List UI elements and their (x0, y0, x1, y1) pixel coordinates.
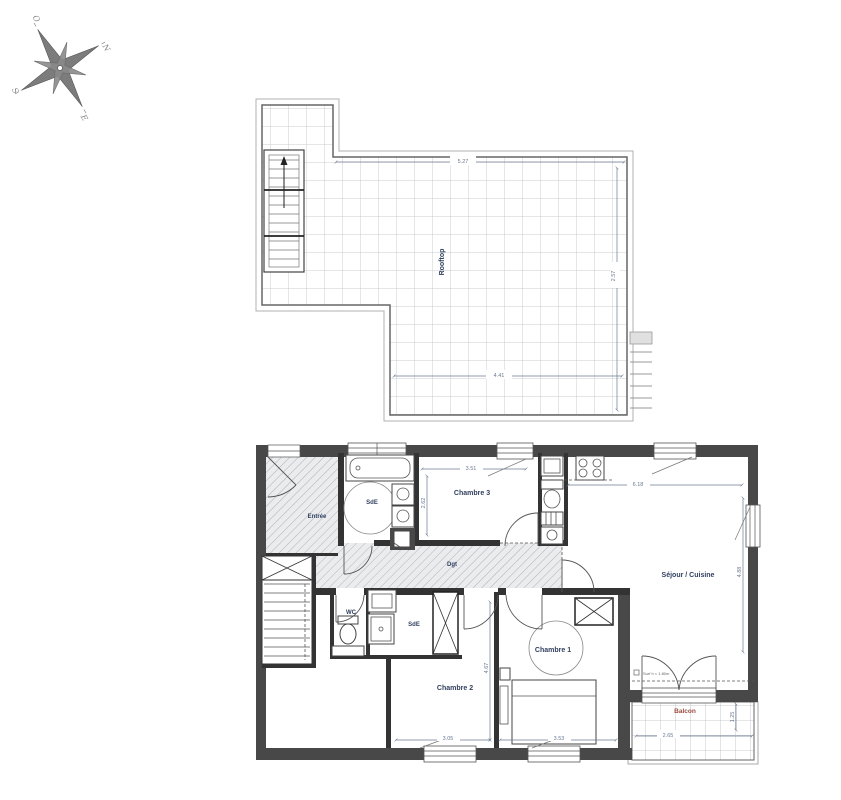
window-chambre2 (424, 746, 476, 762)
fixtures (332, 455, 614, 744)
dim-sejour-width: 6.18 (633, 482, 644, 488)
room-label-sde2: SdE (408, 622, 420, 628)
room-label-entree: Entrée (308, 514, 327, 520)
terrace-dim-bottom: 4.41 (494, 373, 505, 379)
room-label-dgt: Dgt (447, 562, 457, 568)
floor-plan-page: O N S E 5.27 2.57 (0, 0, 841, 800)
terrace-stairs (264, 150, 304, 272)
low-ceiling-note-text: Surf h < 1.80m (643, 671, 670, 676)
low-ceiling-note: Surf h < 1.80m (632, 670, 755, 681)
dim-chambre2-width: 3.05 (443, 736, 454, 742)
understairs-duct (262, 556, 312, 580)
duct-boxes (433, 592, 613, 654)
room-label-chambre3: Chambre 3 (454, 490, 490, 497)
dim-chambre3-height: 2.62 (421, 498, 427, 509)
room-label-chambre2: Chambre 2 (437, 685, 473, 692)
cooktop (576, 456, 604, 480)
shower-tray-sde1 (390, 528, 415, 550)
room-label-balcon: Balcon (674, 708, 696, 715)
bathtub (346, 455, 414, 481)
compass-letter-s: S (10, 86, 21, 96)
compass-letter-e: E (78, 112, 89, 123)
shower-circle-sde1 (344, 482, 396, 534)
window-chambre1 (528, 746, 580, 762)
dim-balcon-height: 1.25 (730, 712, 736, 723)
shower-sde2 (368, 614, 394, 644)
room-label-sde1: SdE (366, 500, 378, 506)
washbasin-sde1-lower (392, 506, 414, 527)
duct-chambre1 (575, 598, 613, 625)
door-chambre2 (464, 595, 498, 629)
terrace-dim-top: 5.27 (458, 159, 469, 165)
door-chambre1 (506, 595, 542, 629)
washbasin-sde2 (368, 590, 396, 612)
kitchen-sink-column (541, 456, 563, 544)
dim-chambre3-width: 3.51 (466, 466, 477, 472)
dim-balcon-width: 2.65 (663, 733, 674, 739)
apartment-stairs (262, 556, 312, 664)
rooftop-terrace: 5.27 2.57 4.41 Rooftop (250, 95, 652, 425)
compass-rose: O N S E (0, 0, 134, 142)
window-entree-top (268, 445, 300, 457)
radiator-chambre1 (500, 686, 508, 724)
bed-chambre1 (500, 668, 596, 744)
door-sejour (562, 560, 594, 592)
french-door-balcony (642, 688, 716, 703)
compass-letter-o: O (31, 14, 42, 25)
room-label-sejour: Séjour / Cuisine (662, 572, 715, 579)
apartment-plan: Surf h < 1.80m 3.51 2.62 6.18 4.88 4.67 … (256, 443, 760, 764)
terrace-dim-right: 2.57 (611, 271, 617, 282)
duct-sde2 (433, 592, 458, 654)
dim-sejour-height: 4.88 (737, 567, 743, 578)
room-label-wc: WC (346, 610, 357, 616)
washbasin-sde1-upper (392, 484, 414, 505)
window-chambre3 (497, 443, 533, 459)
rooftop-label: Rooftop (439, 249, 446, 276)
room-label-chambre1: Chambre 1 (535, 647, 571, 654)
dim-chambre1-width: 3.53 (554, 736, 565, 742)
floor-plan-drawing: O N S E 5.27 2.57 (0, 0, 841, 800)
door-chambre3 (505, 513, 538, 546)
dim-chambre2-height: 4.67 (484, 663, 490, 674)
window-sejour-top (654, 443, 696, 459)
